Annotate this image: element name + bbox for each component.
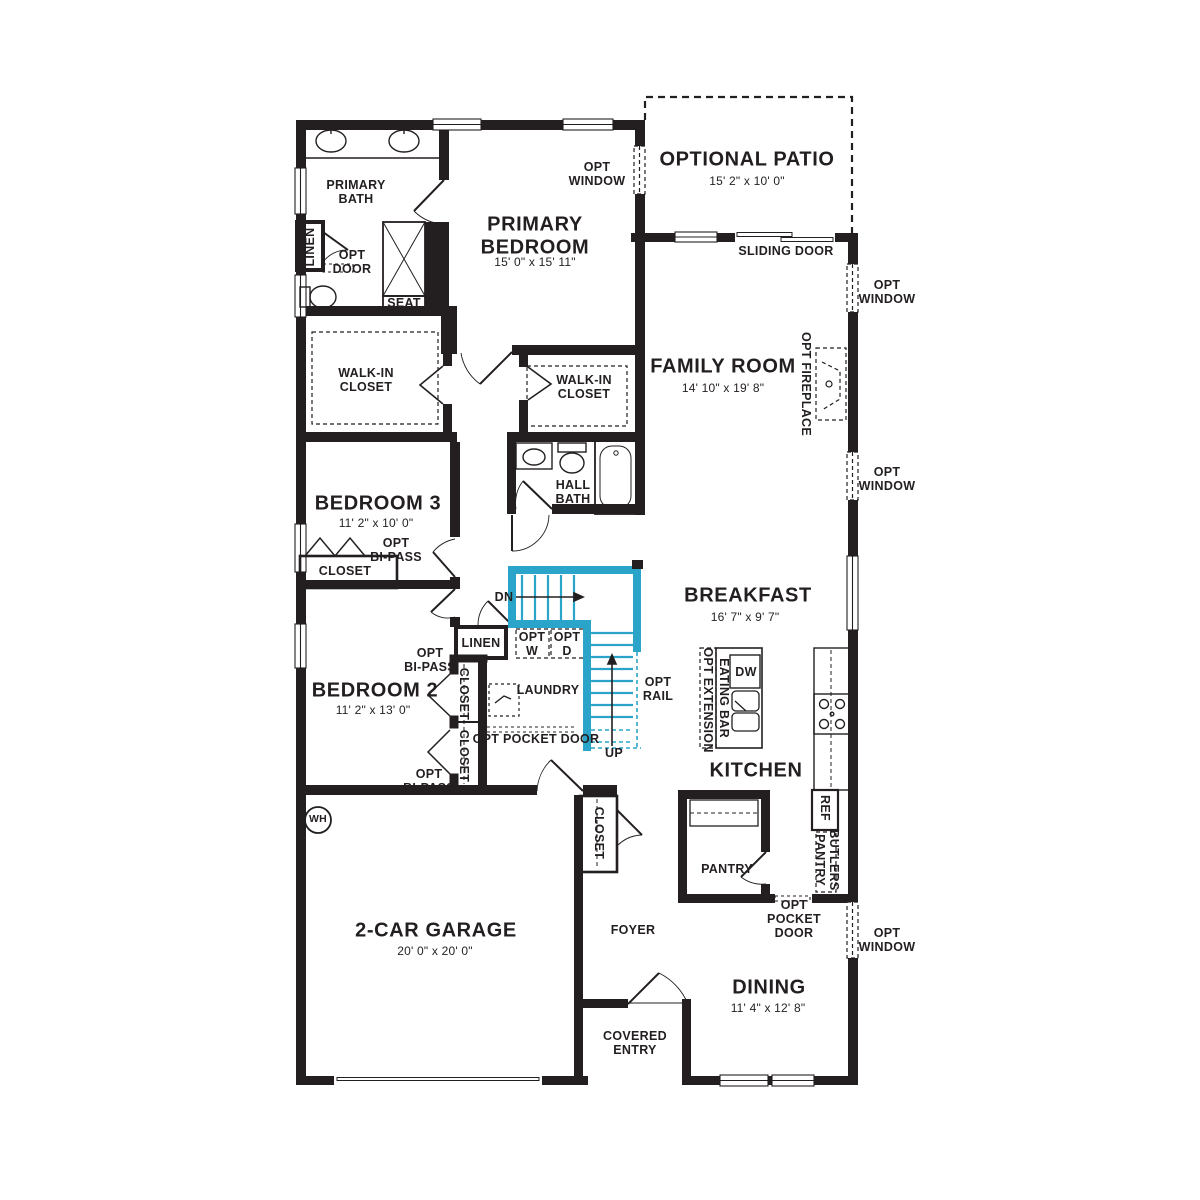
- closet-foyer-label: CLOSET: [592, 807, 606, 860]
- eating-bar-label: EATING BAR: [717, 658, 731, 738]
- foyer-label: FOYER: [611, 923, 656, 937]
- walk-in-closet-right-label: WALK-IN CLOSET: [556, 373, 612, 401]
- opt-extension-label: OPT EXTENSION: [701, 647, 715, 752]
- opt-window-right-3-label: OPT WINDOW: [859, 926, 916, 954]
- butlers-pantry-label: BUTLERS PANTRY: [813, 829, 841, 890]
- primary-bath-label: PRIMARY BATH: [326, 178, 385, 206]
- bedroom3-dims-label: 11' 2" x 10' 0": [339, 517, 414, 531]
- breakfast-dims-label: 16' 7" x 9' 7": [711, 611, 780, 625]
- linen-bath-label: LINEN: [303, 228, 317, 267]
- opt-bipass-bedroom2-bottom-label: OPT BI-PASS: [403, 767, 455, 795]
- opt-window-right-1-label: OPT WINDOW: [859, 278, 916, 306]
- opt-w-label: OPT W: [519, 630, 546, 658]
- linen-stairs-label: LINEN: [462, 636, 501, 650]
- garage-dims-label: 20' 0" x 20' 0": [397, 945, 472, 959]
- opt-window-top-label: OPT WINDOW: [569, 160, 626, 188]
- ref-label: REF: [818, 795, 832, 821]
- optional-patio-dims-label: 15' 2" x 10' 0": [709, 175, 784, 189]
- bedroom2-name-label: BEDROOM 2: [312, 680, 439, 703]
- primary-bedroom-dims-label: 15' 0" x 15' 11": [494, 256, 575, 270]
- opt-fireplace-label: OPT FIREPLACE: [799, 332, 813, 436]
- opt-d-label: OPT D: [554, 630, 581, 658]
- wh-label: WH: [309, 814, 327, 826]
- dining-dims-label: 11' 4" x 12' 8": [731, 1002, 806, 1016]
- family-room-name-label: FAMILY ROOM: [650, 356, 796, 379]
- primary-bedroom-name-label: PRIMARY BEDROOM: [481, 213, 590, 258]
- breakfast-name-label: BREAKFAST: [684, 585, 812, 608]
- closet-bedroom3-label: CLOSET: [319, 564, 372, 578]
- floor-plan: PRIMARY BATHLINENOPT DOORSEATPRIMARY BED…: [0, 0, 1200, 1200]
- opt-window-right-2-label: OPT WINDOW: [859, 465, 916, 493]
- garage-name-label: 2-CAR GARAGE: [355, 920, 517, 943]
- up-label: UP: [605, 746, 623, 760]
- family-room-dims-label: 14' 10" x 19' 8": [682, 382, 764, 396]
- closet-bedroom2-b-label: CLOSET: [457, 730, 471, 783]
- closet-bedroom2-a-label: CLOSET: [457, 668, 471, 721]
- kitchen-name-label: KITCHEN: [709, 760, 802, 783]
- laundry-label: LAUNDRY: [517, 683, 580, 697]
- bedroom2-dims-label: 11' 2" x 13' 0": [336, 704, 411, 718]
- opt-rail-label: OPT RAIL: [643, 675, 673, 703]
- opt-door-label: OPT DOOR: [333, 248, 372, 276]
- label-layer: PRIMARY BATHLINENOPT DOORSEATPRIMARY BED…: [0, 0, 1200, 1200]
- opt-pocket-door-laundry-label: OPT POCKET DOOR: [473, 732, 600, 746]
- optional-patio-name-label: OPTIONAL PATIO: [659, 149, 834, 172]
- seat-label: SEAT: [387, 296, 421, 310]
- hall-bath-label: HALL BATH: [556, 478, 591, 506]
- sliding-door-label: SLIDING DOOR: [738, 244, 833, 258]
- opt-pocket-door-kitchen-label: OPT POCKET DOOR: [767, 898, 821, 940]
- pantry-label: PANTRY: [701, 862, 753, 876]
- opt-bipass-bedroom2-top-label: OPT BI-PASS: [404, 646, 456, 674]
- opt-bipass-bedroom3-label: OPT BI-PASS: [370, 536, 422, 564]
- dining-name-label: DINING: [732, 977, 806, 1000]
- walk-in-closet-left-label: WALK-IN CLOSET: [338, 366, 394, 394]
- dn-label: DN: [495, 590, 514, 604]
- covered-entry-label: COVERED ENTRY: [603, 1029, 667, 1057]
- bedroom3-name-label: BEDROOM 3: [315, 493, 442, 516]
- dw-label: DW: [735, 665, 756, 679]
